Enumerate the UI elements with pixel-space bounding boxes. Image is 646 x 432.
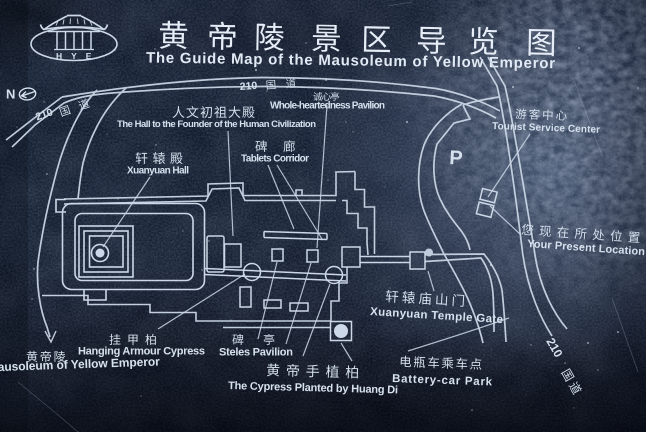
svg-text:N: N <box>6 87 15 102</box>
svg-text:Whole-heartedness Pavilion: Whole-heartedness Pavilion <box>270 101 385 112</box>
svg-text:HYE: HYE <box>56 51 100 61</box>
svg-text:P: P <box>449 147 463 170</box>
svg-text:210: 210 <box>239 80 257 93</box>
svg-text:Steles Pavilion: Steles Pavilion <box>219 347 293 359</box>
svg-text:Xuanyuan Hall: Xuanyuan Hall <box>127 166 189 177</box>
svg-text:The Hall to the Founder of the: The Hall to the Founder of the Human Civ… <box>117 119 316 130</box>
svg-text:Tablets Corridor: Tablets Corridor <box>241 154 309 165</box>
